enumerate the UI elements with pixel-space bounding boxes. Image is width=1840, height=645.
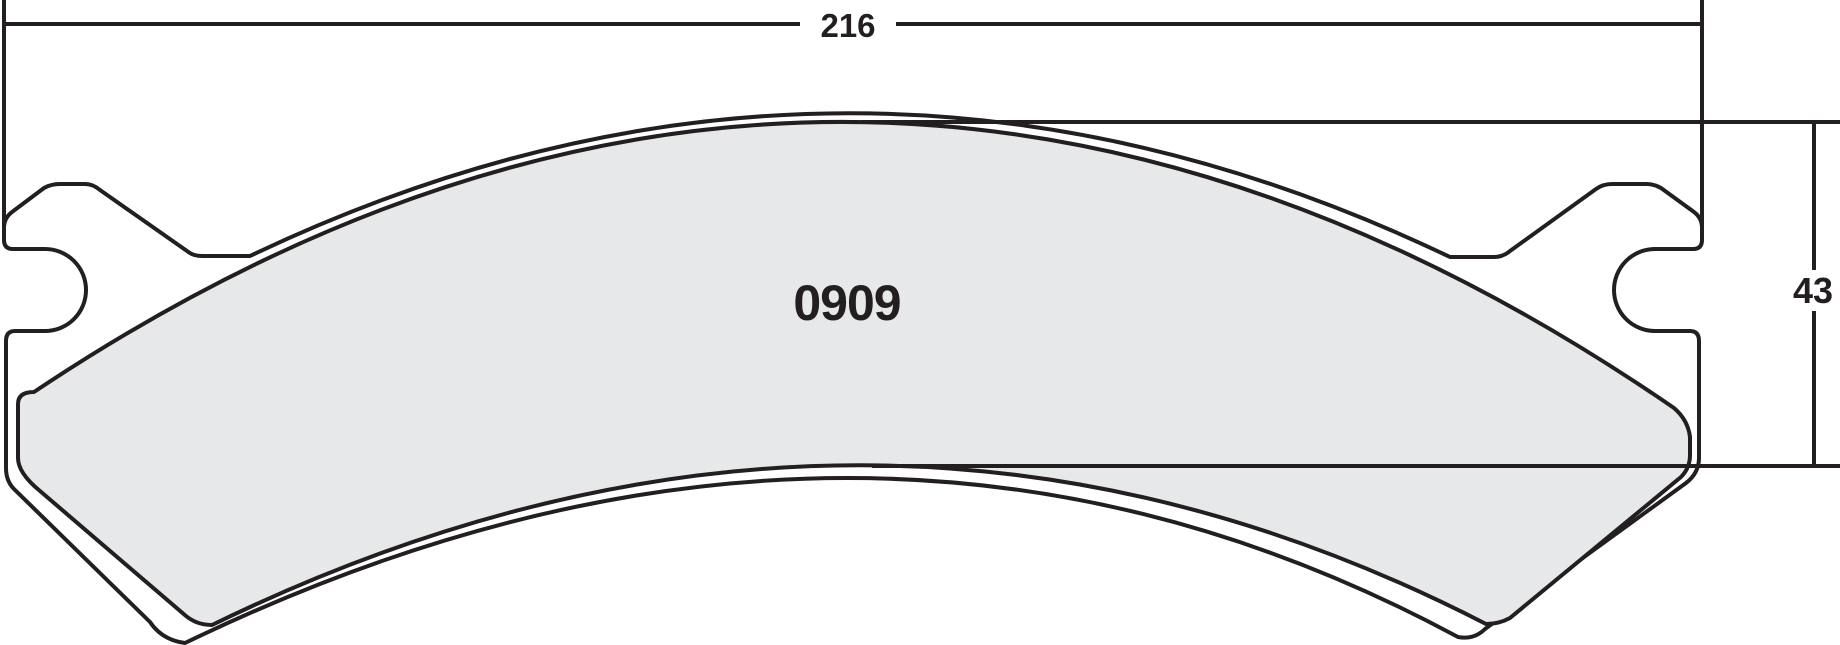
drawing-svg: 216 43 0909 xyxy=(0,0,1840,645)
brake-pad-drawing: 216 43 0909 xyxy=(0,0,1840,645)
height-dimension-value: 43 xyxy=(1793,270,1833,311)
friction-material xyxy=(18,122,1690,625)
width-dimension-value: 216 xyxy=(820,7,875,44)
part-number-label: 0909 xyxy=(793,275,900,331)
